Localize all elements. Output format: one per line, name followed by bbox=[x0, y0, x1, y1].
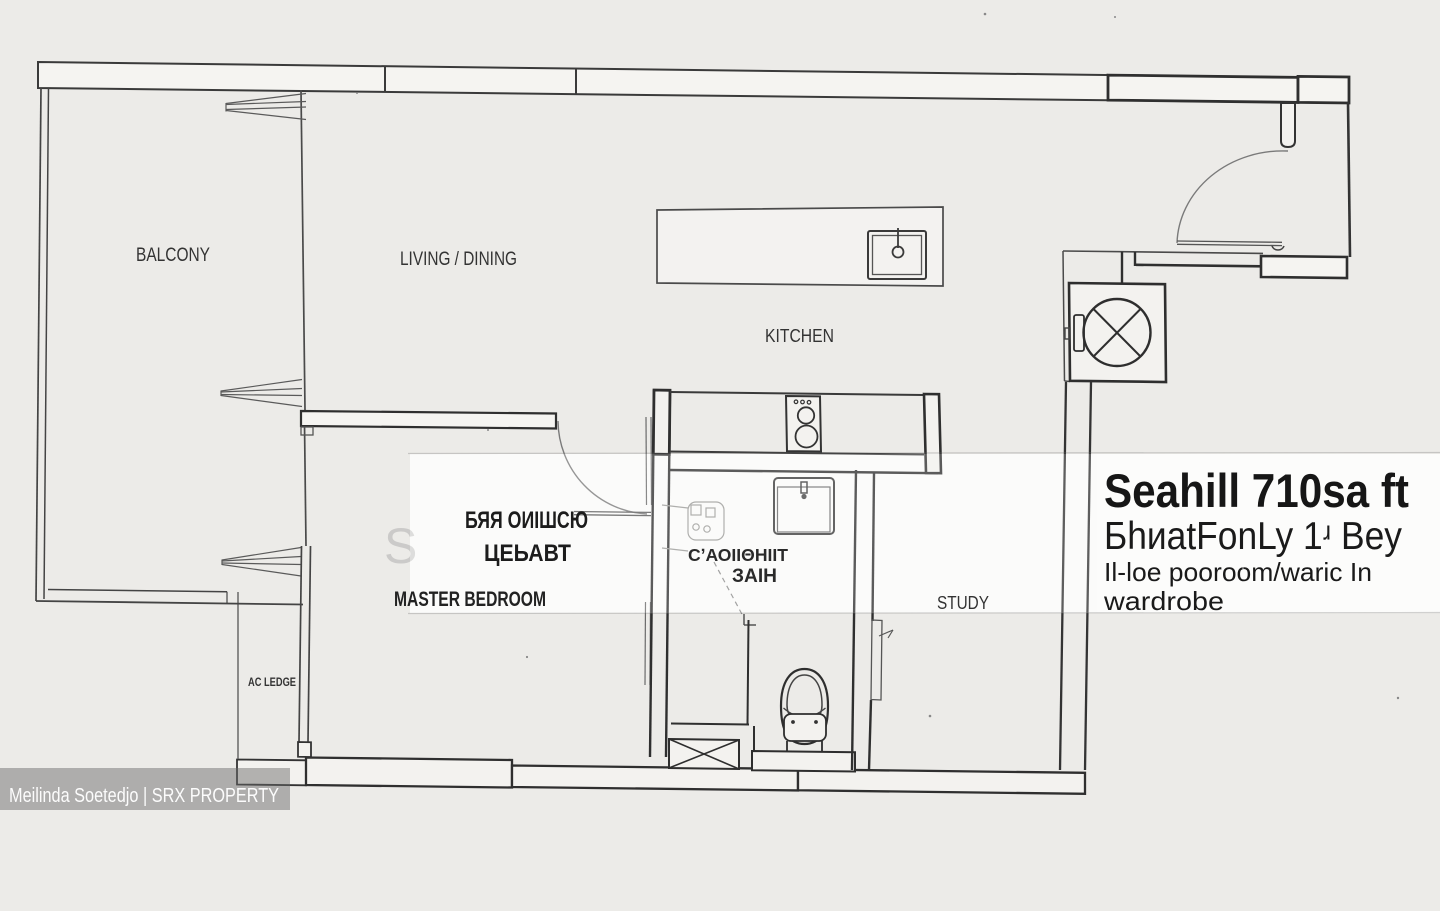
svg-text:wardrobe: wardrobe bbox=[1103, 586, 1224, 616]
svg-text:БЯЯ ОИІШСЮ: БЯЯ ОИІШСЮ bbox=[465, 507, 588, 534]
svg-text:KITCHEN: KITCHEN bbox=[765, 325, 834, 346]
svg-text:Meilinda Soetedjo | SRX PROPER: Meilinda Soetedjo | SRX PROPERTY bbox=[9, 785, 279, 807]
svg-text:ЦЕЬАВТ: ЦЕЬАВТ bbox=[484, 540, 571, 567]
svg-text:БhиatFonLy 1ʴ Bey: БhиatFonLy 1ʴ Bey bbox=[1104, 515, 1402, 558]
svg-text:Seahill 710sa ft: Seahill 710sa ft bbox=[1104, 464, 1409, 517]
svg-text:STUDY: STUDY bbox=[937, 592, 989, 613]
svg-text:ЗΑΙΗ: ЗΑΙΗ bbox=[732, 566, 777, 587]
svg-text:ϹʼΑΟΙΙΘΗΙΙΤ: ϹʼΑΟΙΙΘΗΙΙΤ bbox=[688, 545, 788, 565]
svg-text:MASTER BEDROOM: MASTER BEDROOM bbox=[394, 588, 546, 611]
svg-text:AC LEDGE: AC LEDGE bbox=[248, 677, 296, 689]
svg-text:Il-loe pooroom/waric In: Il-loe pooroom/waric In bbox=[1104, 557, 1372, 587]
svg-text:BALCONY: BALCONY bbox=[136, 245, 210, 266]
svg-text:LIVING / DINING: LIVING / DINING bbox=[400, 249, 517, 270]
